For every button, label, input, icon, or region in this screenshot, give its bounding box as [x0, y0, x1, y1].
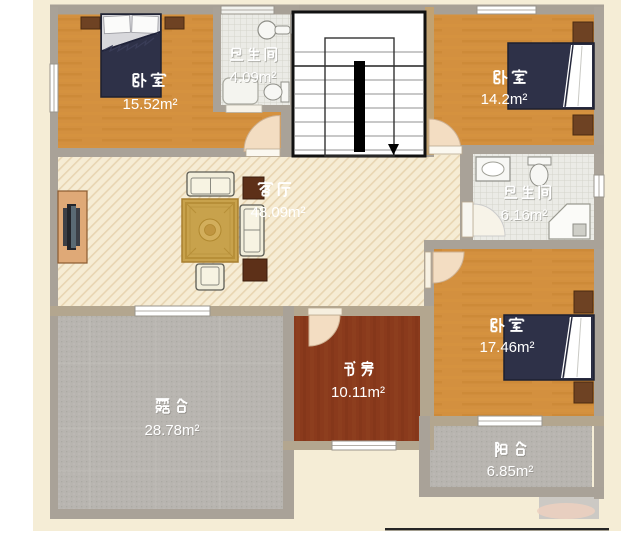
svg-text:48.09m²: 48.09m² — [250, 204, 305, 221]
svg-text:15.52m²: 15.52m² — [122, 96, 177, 113]
svg-text:28.78m²: 28.78m² — [144, 422, 199, 439]
svg-text:17.46m²: 17.46m² — [479, 339, 534, 356]
svg-text:10.11m²: 10.11m² — [331, 384, 385, 401]
svg-text:6.16m²: 6.16m² — [501, 207, 548, 224]
svg-text:14.2m²: 14.2m² — [481, 91, 528, 108]
svg-text:4.09m²: 4.09m² — [230, 69, 277, 86]
svg-text:6.85m²: 6.85m² — [487, 463, 534, 480]
